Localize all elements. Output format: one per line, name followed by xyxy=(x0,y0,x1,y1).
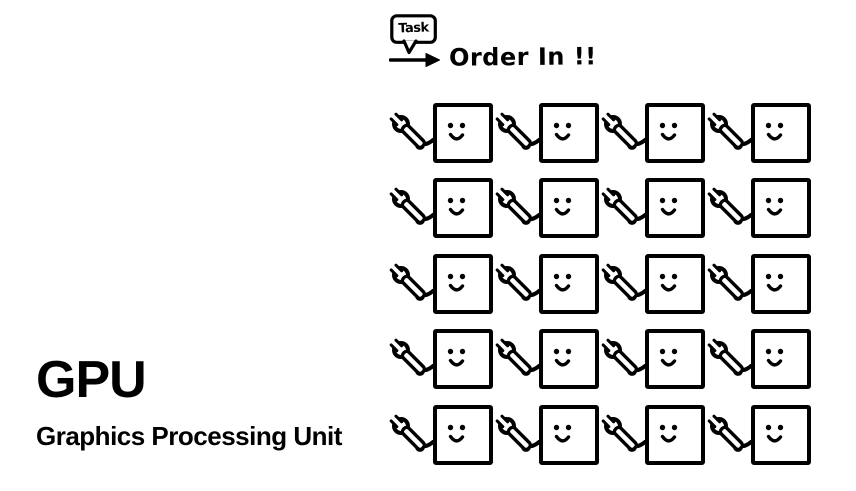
wrench-icon xyxy=(599,254,645,314)
core-square xyxy=(645,405,705,465)
core-square xyxy=(539,178,599,238)
smiley-face-icon xyxy=(437,409,489,461)
wrench-icon xyxy=(493,329,539,389)
smiley-face-icon xyxy=(543,409,595,461)
core-cell xyxy=(387,178,493,238)
wrench-icon xyxy=(705,103,751,163)
core-cell xyxy=(387,405,493,465)
wrench-icon xyxy=(599,103,645,163)
core-square xyxy=(751,178,811,238)
core-square xyxy=(539,103,599,163)
core-cell xyxy=(705,254,811,314)
smiley-face-icon xyxy=(543,182,595,234)
wrench-icon xyxy=(493,254,539,314)
core-cell xyxy=(493,178,599,238)
core-square xyxy=(539,329,599,389)
core-cell xyxy=(599,405,705,465)
wrench-icon xyxy=(599,178,645,238)
core-square xyxy=(433,405,493,465)
core-cell xyxy=(493,405,599,465)
core-cell xyxy=(493,103,599,163)
smiley-face-icon xyxy=(755,409,807,461)
smiley-face-icon xyxy=(649,107,701,159)
core-cell xyxy=(599,103,705,163)
gpu-illustration: Task Order In !! xyxy=(0,0,856,491)
task-label: Task xyxy=(390,14,438,43)
smiley-face-icon xyxy=(755,182,807,234)
page-subtitle: Graphics Processing Unit xyxy=(36,422,342,450)
core-cell xyxy=(705,329,811,389)
wrench-icon xyxy=(387,405,433,465)
smiley-face-icon xyxy=(649,182,701,234)
smiley-face-icon xyxy=(437,333,489,385)
core-cell xyxy=(705,178,811,238)
core-cell xyxy=(387,103,493,163)
page-title: GPU xyxy=(36,352,342,408)
wrench-icon xyxy=(493,103,539,163)
core-square xyxy=(645,178,705,238)
smiley-face-icon xyxy=(755,333,807,385)
core-cell xyxy=(387,329,493,389)
right-arrow-icon xyxy=(389,52,441,68)
core-cell xyxy=(493,254,599,314)
core-square xyxy=(539,254,599,314)
core-square xyxy=(433,178,493,238)
core-cell xyxy=(387,254,493,314)
core-square xyxy=(433,329,493,389)
core-cell xyxy=(599,254,705,314)
wrench-icon xyxy=(705,405,751,465)
wrench-icon xyxy=(387,178,433,238)
core-square xyxy=(751,254,811,314)
smiley-face-icon xyxy=(649,409,701,461)
wrench-icon xyxy=(599,405,645,465)
order-in-caption: Order In !! xyxy=(449,42,597,71)
wrench-icon xyxy=(387,329,433,389)
core-square xyxy=(645,329,705,389)
core-cell xyxy=(599,178,705,238)
smiley-face-icon xyxy=(649,258,701,310)
wrench-icon xyxy=(493,405,539,465)
smiley-face-icon xyxy=(755,107,807,159)
smiley-face-icon xyxy=(437,182,489,234)
wrench-icon xyxy=(705,329,751,389)
core-square xyxy=(751,329,811,389)
wrench-icon xyxy=(705,178,751,238)
smiley-face-icon xyxy=(755,258,807,310)
core-cell xyxy=(705,103,811,163)
core-square xyxy=(433,103,493,163)
core-square xyxy=(433,254,493,314)
core-square xyxy=(539,405,599,465)
wrench-icon xyxy=(493,178,539,238)
smiley-face-icon xyxy=(437,258,489,310)
wrench-icon xyxy=(387,103,433,163)
core-square xyxy=(751,103,811,163)
wrench-icon xyxy=(705,254,751,314)
title-block: GPU Graphics Processing Unit xyxy=(36,352,342,450)
smiley-face-icon xyxy=(649,333,701,385)
wrench-icon xyxy=(387,254,433,314)
core-cell xyxy=(493,329,599,389)
core-square xyxy=(645,254,705,314)
smiley-face-icon xyxy=(543,258,595,310)
core-square xyxy=(645,103,705,163)
core-square xyxy=(751,405,811,465)
wrench-icon xyxy=(599,329,645,389)
core-cell xyxy=(705,405,811,465)
core-cell xyxy=(599,329,705,389)
smiley-face-icon xyxy=(437,107,489,159)
smiley-face-icon xyxy=(543,333,595,385)
core-grid xyxy=(387,103,811,465)
smiley-face-icon xyxy=(543,107,595,159)
